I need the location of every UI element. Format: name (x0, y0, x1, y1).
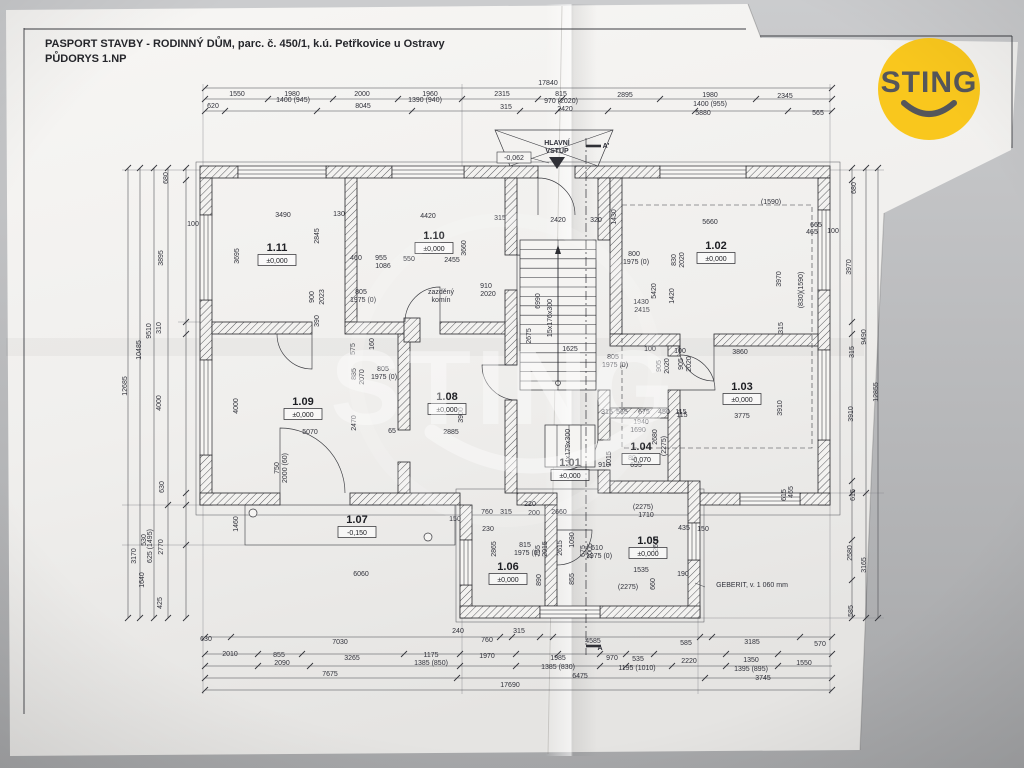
dimension-label: 1195 (1010) (618, 665, 655, 672)
dimension-label: -0,062 (504, 155, 524, 162)
room-elevation: ±0,000 (497, 577, 518, 584)
room-number: 1.03 (731, 381, 752, 393)
room-number: 1.02 (705, 240, 726, 252)
dimension-label: 3660 (461, 240, 468, 256)
dimension-label: 565 (812, 110, 824, 117)
dimension-label: 425 (157, 597, 164, 609)
room-elevation: ±0,000 (292, 412, 313, 419)
dimension-label: 390 (314, 315, 321, 327)
dimension-label: 755 (535, 545, 542, 557)
dimension-label: 3910 (777, 400, 784, 416)
room-number: 1.06 (497, 561, 518, 573)
dimension-label: 830 (671, 254, 678, 266)
dimension-label: 17840 (538, 80, 558, 87)
dimension-label: 2010 (222, 651, 238, 658)
dimension-label: 2865 (491, 541, 498, 557)
document-title: PASPORT STAVBY - RODINNÝ DŮM, parc. č. 4… (45, 36, 445, 50)
dimension-label: 890 (536, 574, 543, 586)
dimension-label: 1395 (895) (734, 666, 768, 673)
dimension-label: 1460 (233, 516, 240, 532)
dimension-label: 1390 (940) (408, 97, 442, 104)
dimension-label: 615 (850, 489, 857, 501)
dimension-label: A' (603, 143, 610, 150)
dimension-label: 970 (2020) (544, 98, 578, 105)
dimension-label: 2000 (60) (282, 453, 289, 483)
wall-segment (460, 606, 540, 618)
dimension-label: 9490 (861, 329, 868, 345)
wall-segment (714, 334, 818, 346)
wall-segment (700, 493, 740, 505)
dimension-label: 900 (309, 291, 316, 303)
dimension-label: 2000 (354, 91, 370, 98)
wall-segment (212, 322, 312, 334)
dimension-label: 1385 (850) (414, 660, 448, 667)
dimension-label: 1550 (229, 91, 245, 98)
dimension-label: 100 (827, 228, 839, 235)
room-number: 1.07 (346, 514, 367, 526)
dimension-label: 315 (849, 346, 856, 358)
dimension-label: (2275) (618, 584, 638, 591)
dimension-label: 2023 (319, 289, 326, 305)
dimension-label: 4585 (585, 638, 601, 645)
dimension-label: 1640 (139, 572, 146, 588)
dimension-label: 3860 (732, 349, 748, 356)
dimension-label: 805 (355, 289, 367, 296)
dimension-label: 315 (778, 322, 785, 334)
dimension-label: 6060 (353, 571, 369, 578)
wall-segment (517, 493, 557, 505)
wall-segment (610, 481, 688, 493)
dimension-label: 2015 (542, 541, 549, 557)
dimension-label: 3265 (344, 655, 360, 662)
dimension-label: 150 (697, 526, 709, 533)
dimension-label: 680 (851, 182, 858, 194)
window (392, 166, 464, 178)
dimension-label: 585 (848, 605, 855, 617)
room-elevation: -0,150 (347, 530, 367, 537)
dimension-label: 1550 (796, 660, 812, 667)
dimension-label: 6475 (572, 673, 588, 680)
dimension-label: 5070 (302, 429, 318, 436)
dimension-label: 3695 (234, 248, 241, 264)
dimension-label: 190 (677, 571, 689, 578)
dimension-label: HLAVNÍ (544, 138, 571, 147)
wall-segment (800, 493, 830, 505)
dimension-label: 3745 (755, 675, 771, 682)
dimension-label: 2895 (617, 92, 633, 99)
dimension-label: 1400 (945) (276, 97, 310, 104)
wall-segment (575, 166, 660, 178)
dimension-label: 1970 (479, 653, 495, 660)
dimension-label: 100 (187, 221, 199, 228)
dimension-label: 7030 (332, 639, 348, 646)
dimension-label: 2580 (847, 545, 854, 561)
wall-segment (200, 300, 212, 360)
window (238, 166, 326, 178)
wall-segment (326, 166, 392, 178)
dimension-label: 3170 (131, 548, 138, 564)
dimension-label: 9510 (146, 323, 153, 339)
dimension-label: zazděný (428, 289, 455, 296)
dimension-label: 3490 (275, 212, 291, 219)
dimension-label: 315 (500, 104, 512, 111)
dimension-label: 1975 (0) (623, 259, 649, 266)
dimension-label: 2005 (587, 543, 594, 559)
dimension-label: 630 (200, 636, 212, 643)
dimension-label: 8045 (355, 103, 371, 110)
logo-text: STING (881, 66, 978, 99)
dimension-label: 5420 (651, 283, 658, 299)
dimension-label: A (597, 645, 602, 652)
dimension-label: 910 (480, 283, 492, 290)
dimension-label: 3895 (158, 250, 165, 266)
wall-segment (200, 178, 212, 215)
dimension-label: 1420 (669, 288, 676, 304)
window (460, 540, 472, 585)
wall-segment (818, 178, 830, 210)
dimension-label: 315 (513, 628, 525, 635)
dimension-label: 955 (375, 255, 387, 262)
photographed-floor-plan-document: PASPORT STAVBY - RODINNÝ DŮM, parc. č. 4… (0, 0, 1024, 768)
dimension-label: 630 (159, 481, 166, 493)
dimension-label: 3970 (846, 259, 853, 275)
dimension-label: 675 (580, 545, 587, 557)
dimension-label: 2615 (557, 540, 564, 556)
dimension-label: 3165 (861, 557, 868, 573)
dimension-label: 2090 (274, 660, 290, 667)
dimension-label: 680 (163, 172, 170, 184)
wall-segment (818, 290, 830, 350)
wall-segment (200, 166, 238, 178)
dimension-label: 310 (156, 322, 163, 334)
dimension-label: 2345 (777, 93, 793, 100)
dimension-label: 2420 (557, 106, 573, 113)
dimension-label: 1535 (633, 567, 649, 574)
dimension-label: 2020 (679, 252, 686, 268)
dimension-label: 230 (482, 526, 494, 533)
wall-segment (600, 606, 700, 618)
dimension-label: 2315 (494, 91, 510, 98)
wall-segment (688, 481, 700, 523)
room-elevation: ±0,000 (731, 397, 752, 404)
dimension-label: 3775 (734, 413, 750, 420)
room-elevation: ±0,000 (266, 258, 287, 265)
dimension-label: 17690 (500, 682, 520, 689)
dimension-label: 620 (207, 103, 219, 110)
dimension-label: 3185 (744, 639, 760, 646)
room-number: 1.05 (637, 535, 658, 547)
dimension-label: 1385 (830) (541, 664, 575, 671)
dimension-label: 4420 (420, 213, 436, 220)
dimension-label: komín (431, 297, 450, 304)
dimension-label: 2455 (444, 257, 460, 264)
window (660, 166, 746, 178)
dimension-label: 625 (1495) (147, 529, 154, 563)
scene-canvas: PASPORT STAVBY - RODINNÝ DŮM, parc. č. 4… (0, 0, 1024, 768)
dimension-label: 12855 (873, 382, 880, 402)
document-subtitle: PŮDORYS 1.NP (45, 51, 127, 65)
dimension-label: 2020 (686, 356, 693, 372)
dimension-label: 665 (810, 222, 822, 229)
dimension-label: 320 (590, 217, 602, 224)
dimension-label: 7675 (322, 671, 338, 678)
dimension-label: 815 (519, 542, 531, 549)
dimension-label: 1090 (569, 532, 576, 548)
dimension-label: 5880 (695, 110, 711, 117)
wall-segment (200, 493, 280, 505)
dimension-label: 1400 (955) (693, 101, 727, 108)
window (540, 606, 600, 618)
dimension-label: (2275) (633, 504, 653, 511)
dimension-label: 535 (632, 656, 644, 663)
dimension-label: 2020 (480, 291, 496, 298)
window (818, 350, 830, 440)
dimension-label: 240 (452, 628, 464, 635)
terrace-post (424, 533, 432, 541)
dimension-label: 585 (680, 640, 692, 647)
dimension-label: 570 (814, 641, 826, 648)
window (200, 360, 212, 455)
dimension-label: 1710 (638, 512, 654, 519)
dimension-label: (1590) (761, 199, 781, 206)
dimension-label: 12685 (122, 376, 129, 396)
room-number: 1.09 (292, 396, 313, 408)
dimension-label: 465 (806, 229, 818, 236)
room-elevation: ±0,000 (637, 551, 658, 558)
dimension-label: 1985 (550, 655, 566, 662)
dimension-label: 130 (333, 211, 345, 218)
sting-logo: STING (878, 38, 980, 140)
dimension-label: VSTUP (545, 148, 569, 155)
dimension-label: 615 (781, 489, 788, 501)
room-elevation: ±0,000 (559, 473, 580, 480)
dimension-label: 815 (555, 91, 567, 98)
dimension-label: 2220 (681, 658, 697, 665)
dimension-label: 2845 (314, 228, 321, 244)
room-number: 1.11 (267, 242, 288, 254)
dimension-label: (830)(1590) (798, 272, 805, 309)
dimension-label: 2770 (158, 539, 165, 555)
wall-segment (746, 166, 830, 178)
dimension-label: 4000 (233, 398, 240, 414)
dimension-label: 970 (606, 655, 618, 662)
terrace-post (249, 509, 257, 517)
dimension-label: GEBERIT, v. 1 060 mm (716, 582, 788, 589)
window (200, 215, 212, 300)
dimension-label: 1980 (702, 92, 718, 99)
dimension-label: 465 (788, 486, 795, 498)
dimension-label: 1350 (743, 657, 759, 664)
dimension-label: 10485 (136, 340, 143, 360)
wall-segment (464, 166, 538, 178)
dimension-label: 1175 (423, 652, 438, 659)
dimension-label: 855 (569, 573, 576, 585)
dimension-label: 750 (274, 462, 281, 474)
dimension-label: 660 (650, 578, 657, 590)
dimension-label: 3910 (848, 406, 855, 422)
dimension-label: 855 (273, 652, 285, 659)
wall-segment (598, 178, 610, 240)
dimension-label: 6990 (535, 293, 542, 309)
dimension-label: 460 (350, 255, 362, 262)
dimension-label: 220 (524, 501, 536, 508)
dimension-label: 3970 (776, 271, 783, 287)
room-elevation: ±0,000 (705, 256, 726, 263)
dimension-label: 5660 (702, 219, 718, 226)
dimension-label: 760 (481, 637, 493, 644)
dimension-label: 435 (678, 525, 690, 532)
dimension-label: 1430 (611, 209, 618, 225)
dimension-label: 800 (628, 251, 640, 258)
dimension-label: 4000 (156, 395, 163, 411)
